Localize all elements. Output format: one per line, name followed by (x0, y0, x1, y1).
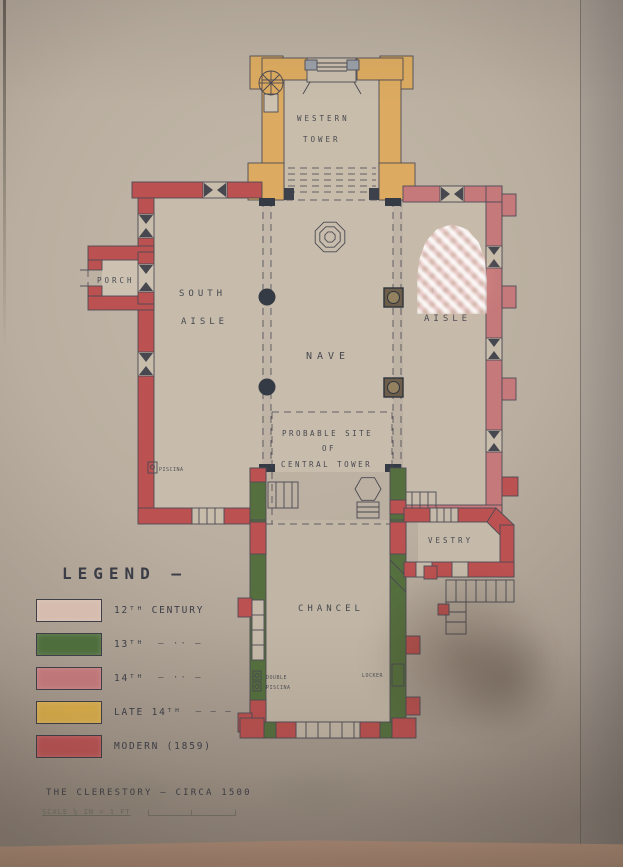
legend-swatch-modern (36, 735, 102, 758)
photograph-of-architectural-plan: WESTERN TOWER PORCH SOUTH AISLE NAVE NOR… (0, 0, 623, 867)
legend-item-late-14th-century: LATE 14ᵀᴴ – – – (36, 701, 271, 723)
paper-edge-right (580, 0, 623, 867)
legend-title: LEGEND — (62, 564, 271, 583)
legend-label-late-14th: LATE 14ᵀᴴ (114, 707, 182, 718)
label-central-tower-line2: OF (322, 444, 336, 453)
label-western-tower-line1: WESTERN (297, 114, 350, 123)
label-nave: NAVE (306, 351, 350, 362)
label-central-tower-line3: CENTRAL TOWER (281, 460, 372, 469)
legend-item-13th-century: 13ᵀᴴ – ·· – (36, 633, 271, 655)
label-central-tower-line1: PROBABLE SITE (282, 429, 373, 438)
legend-item-14th-century: 14ᵀᴴ – ·· – (36, 667, 271, 689)
west-wall-south (132, 182, 262, 198)
legend: LEGEND — 12ᵀᴴ CENTURY 13ᵀᴴ – ·· – 14ᵀᴴ –… (36, 564, 271, 769)
label-south-aisle-line1: SOUTH (179, 289, 226, 299)
legend-ditto-late-14th: – – – (196, 707, 233, 717)
photographer-shadow (420, 595, 590, 765)
label-porch: PORCH (97, 276, 135, 285)
legend-swatch-13th (36, 633, 102, 656)
label-piscina: PISCINA (159, 467, 184, 473)
legend-swatch-12th (36, 599, 102, 622)
legend-label-modern: MODERN (1859) (114, 741, 212, 752)
legend-ditto-13th: – ·· – (158, 639, 203, 649)
legend-item-modern-1859: MODERN (1859) (36, 735, 271, 757)
label-south-aisle-line2: AISLE (181, 317, 228, 327)
legend-item-12th-century: 12ᵀᴴ CENTURY (36, 599, 271, 621)
paper-stain (90, 770, 180, 820)
legend-swatch-late-14th (36, 701, 102, 724)
legend-ditto-14th: – ·· – (158, 673, 203, 683)
legend-label-14th: 14ᵀᴴ (114, 673, 144, 684)
pulpit (355, 478, 381, 518)
legend-label-12th: 12ᵀᴴ CENTURY (114, 605, 204, 616)
legend-label-13th: 13ᵀᴴ (114, 639, 144, 650)
legend-swatch-14th (36, 667, 102, 690)
south-aisle-east-wall (138, 508, 262, 524)
label-western-tower-line2: TOWER (303, 135, 341, 144)
frame-edge-left (3, 0, 6, 350)
